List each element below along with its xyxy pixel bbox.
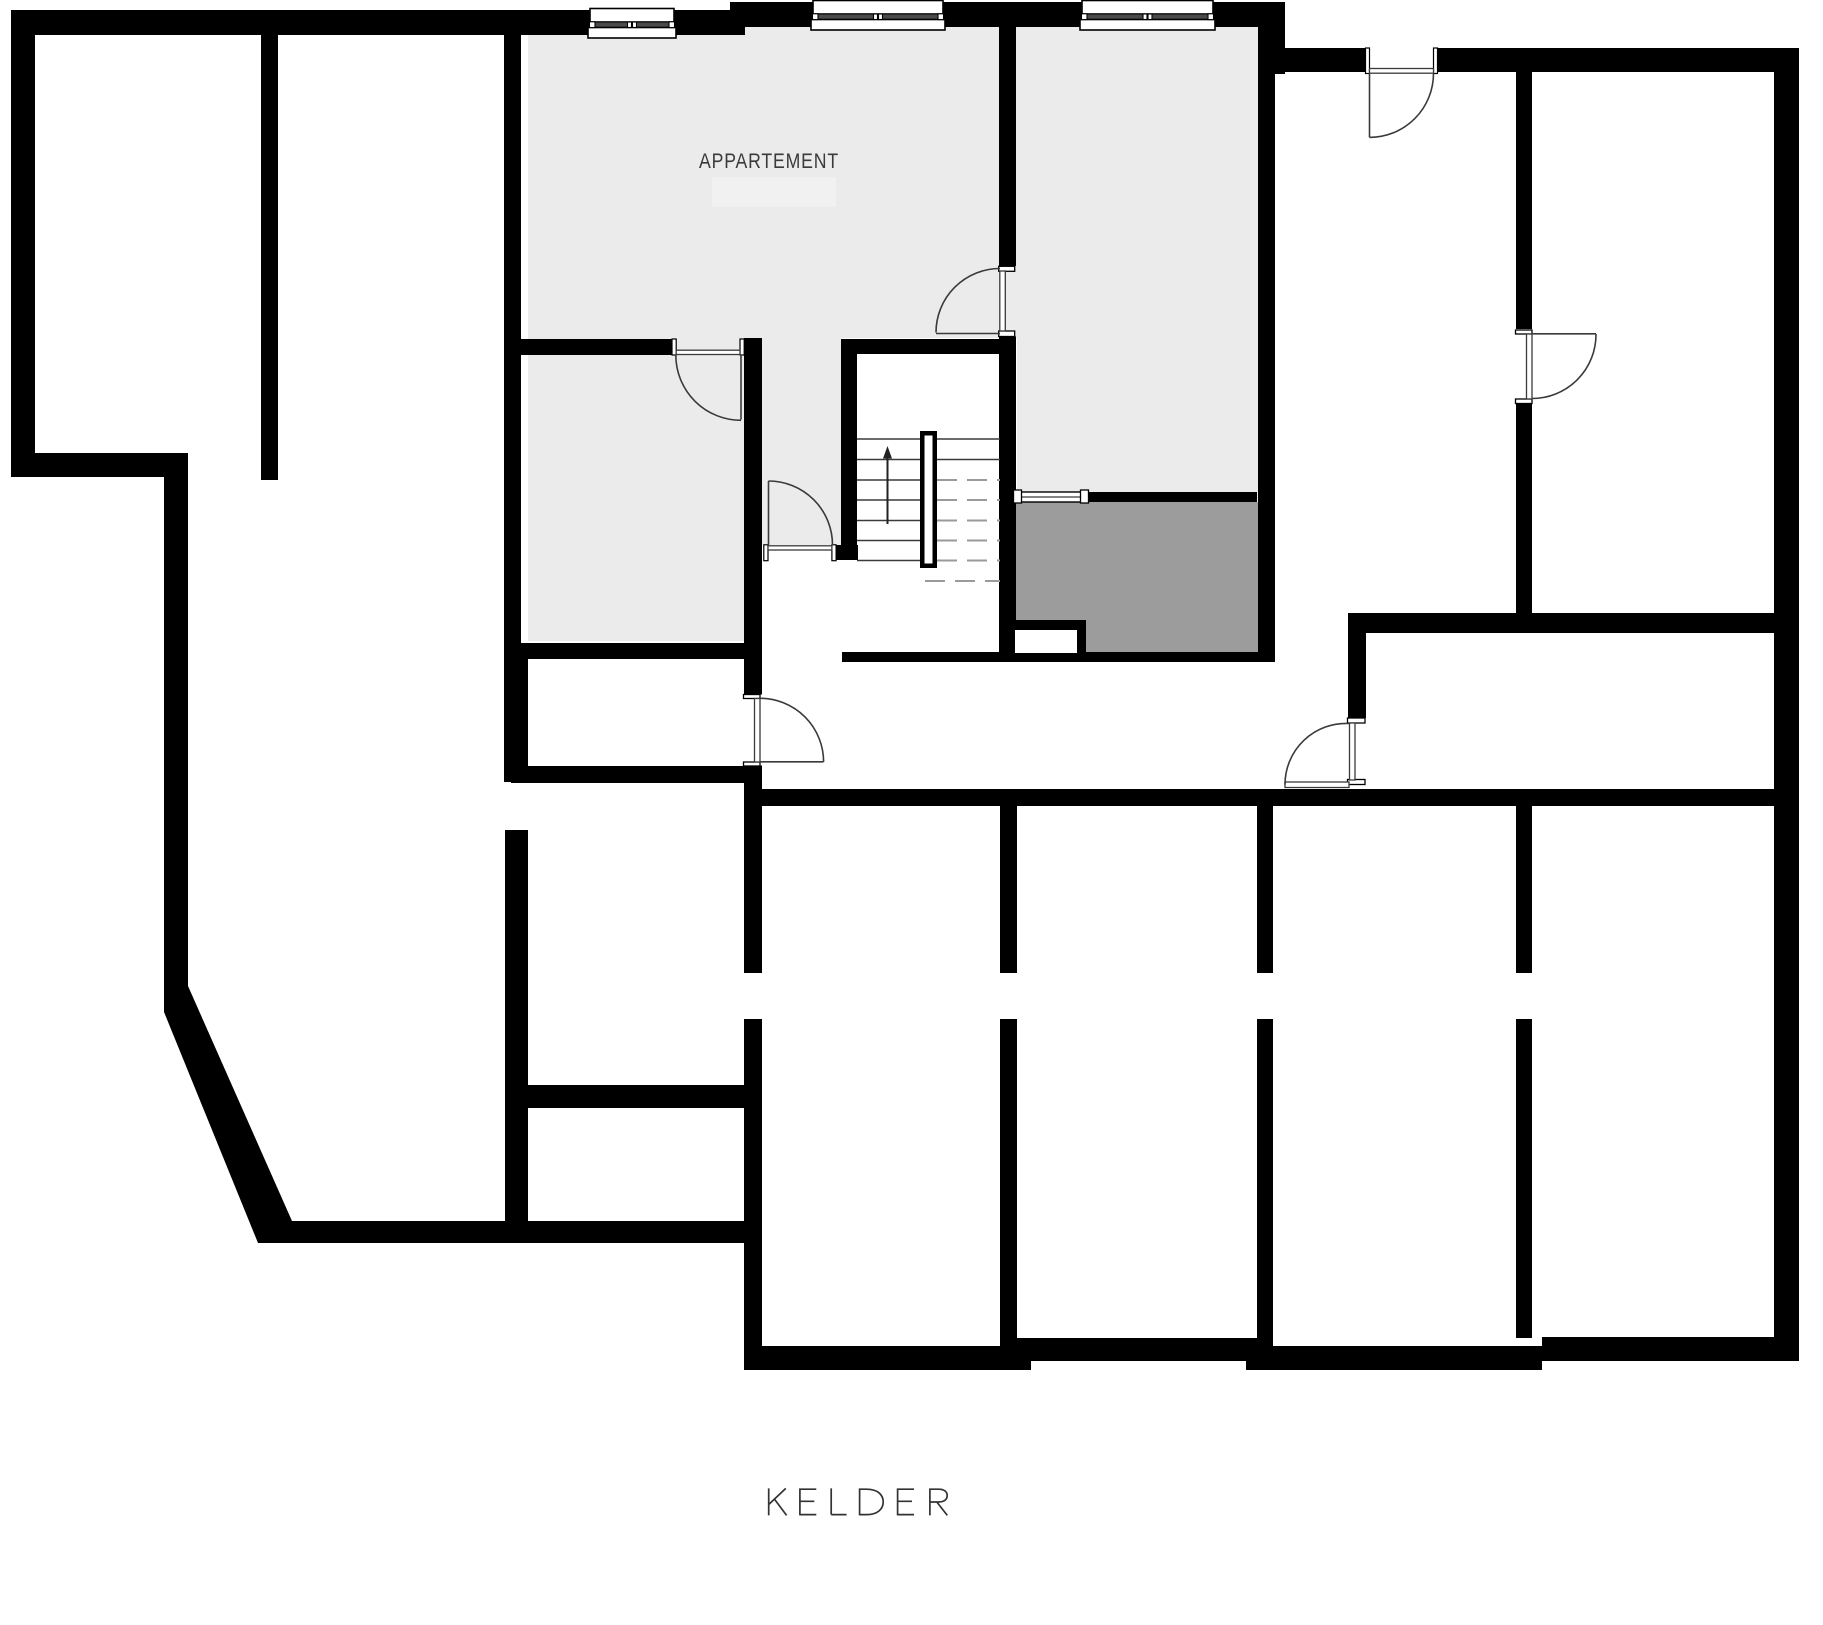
svg-text:APPARTEMENT: APPARTEMENT [699, 150, 839, 173]
